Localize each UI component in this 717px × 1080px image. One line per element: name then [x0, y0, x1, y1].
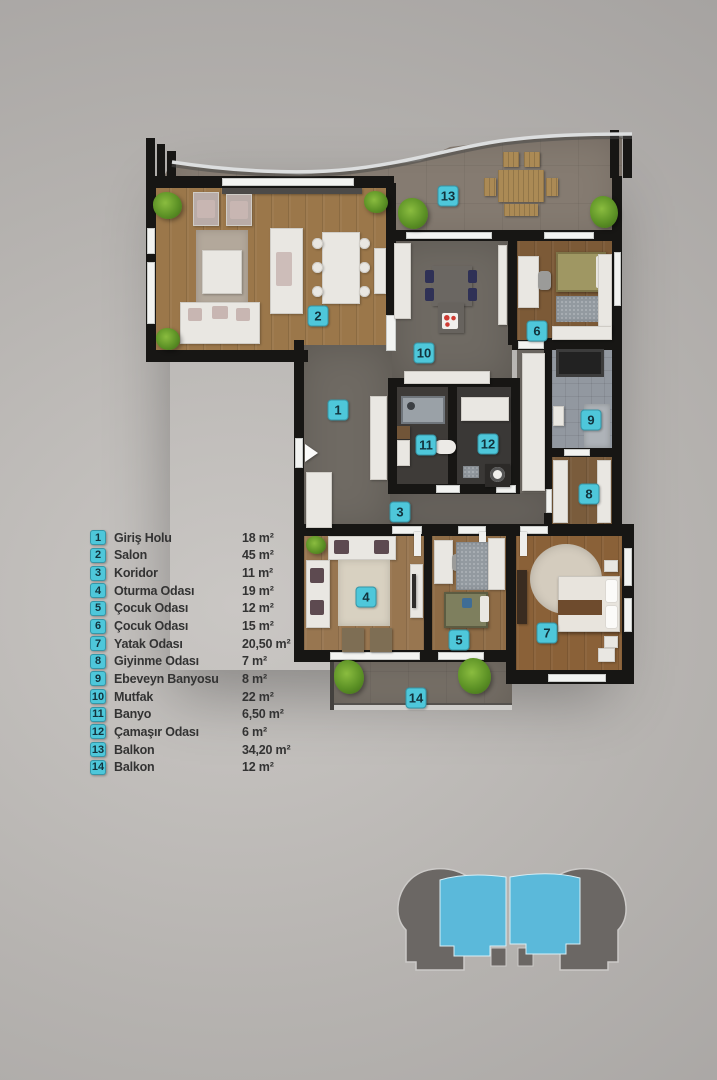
room-number: 5 [455, 633, 462, 648]
balcony-chair [546, 178, 558, 196]
shower [401, 396, 445, 424]
legend-room-area: 19 m² [242, 584, 280, 598]
room-number: 9 [587, 413, 594, 428]
legend-row: 9 Ebeveyn Banyosu 8 m² [90, 670, 280, 688]
sofa-pillow [276, 252, 292, 286]
balcony-dining-table [498, 170, 544, 202]
door-opening [436, 485, 460, 493]
dining-chair [359, 286, 370, 297]
legend-room-label: Giyinme Odası [114, 654, 235, 668]
desk-chair [538, 271, 551, 290]
kitchen-island [432, 266, 472, 306]
room-number: 14 [409, 691, 423, 706]
legend-room-area: 8 m² [242, 672, 280, 686]
dining-chair [312, 262, 323, 273]
lounge-chair [342, 628, 364, 652]
legend-number-badge: 9 [90, 671, 106, 686]
room-number-badge: 6 [527, 321, 548, 342]
sofa-pillow [374, 540, 389, 554]
legend-room-label: Ebeveyn Banyosu [114, 672, 235, 686]
legend-room-area: 18 m² [242, 531, 280, 545]
plant [458, 658, 491, 694]
plant [334, 660, 364, 694]
legend-row: 7 Yatak Odası 20,50 m² [90, 635, 280, 653]
balcony-door [498, 245, 507, 325]
legend-row: 10 Mutfak 22 m² [90, 688, 280, 706]
hall-cabinet [370, 396, 387, 480]
balcony-bench [504, 204, 538, 216]
footprint-right-wing [554, 869, 626, 970]
window [330, 652, 420, 660]
legend-number-badge: 1 [90, 530, 106, 545]
legend-row: 14 Balkon 12 m² [90, 758, 280, 776]
legend: 1 Giriş Holu 18 m² 2 Salon 45 m² 3 Korid… [90, 529, 280, 776]
sofa-pillow [188, 308, 202, 321]
legend-room-area: 15 m² [242, 619, 280, 633]
footprint-left-wing [398, 869, 470, 970]
bed-pillow [480, 596, 489, 622]
sofa-pillow [310, 568, 324, 583]
bar-stool [425, 288, 434, 301]
footprint-unit-highlight-left [440, 875, 506, 956]
window [624, 598, 632, 632]
legend-row: 5 Çocuk Odası 12 m² [90, 600, 280, 618]
legend-number-badge: 6 [90, 619, 106, 634]
room-number: 11 [419, 438, 433, 453]
legend-row: 2 Salon 45 m² [90, 547, 280, 565]
room-number-badge: 7 [537, 623, 558, 644]
bar-stool [468, 270, 477, 283]
bar-stool [468, 288, 477, 301]
room-number: 13 [441, 189, 455, 204]
worktop [404, 371, 490, 384]
window [222, 178, 354, 186]
laundry-mat [463, 466, 479, 478]
wall [424, 532, 432, 650]
building-footprint-key [392, 868, 632, 980]
legend-number-badge: 3 [90, 566, 106, 581]
window [147, 262, 155, 324]
plant [153, 192, 182, 219]
wall [612, 176, 622, 536]
door-leaf [414, 532, 421, 556]
legend-room-label: Çocuk Odası [114, 619, 235, 633]
room-number-badge: 13 [438, 186, 459, 207]
cushion [462, 598, 472, 608]
legend-room-area: 20,50 m² [242, 637, 290, 651]
legend-room-label: Oturma Odası [114, 584, 235, 598]
room-number-badge: 14 [406, 688, 427, 709]
wall [294, 340, 304, 532]
footprint-center-tab [491, 948, 506, 966]
door-opening [564, 449, 590, 456]
legend-number-badge: 2 [90, 548, 106, 563]
room-number-badge: 9 [581, 410, 602, 431]
wall [508, 237, 517, 345]
sink [397, 440, 410, 466]
room-number: 6 [533, 324, 540, 339]
shelf [598, 648, 615, 662]
room-number-badge: 1 [328, 400, 349, 421]
washer-door [490, 467, 505, 482]
balcony-edge [330, 662, 334, 710]
nightstand [604, 560, 618, 572]
wall [610, 130, 619, 178]
room-number-badge: 2 [308, 306, 329, 327]
legend-number-badge: 11 [90, 707, 106, 722]
shoe-cabinet [306, 472, 332, 528]
sofa-pillow [236, 308, 250, 321]
bed-pillow [606, 606, 617, 628]
wall [294, 532, 304, 662]
armchair-cushion [230, 201, 248, 219]
window [406, 232, 492, 239]
legend-number-badge: 8 [90, 654, 106, 669]
desk [518, 256, 539, 308]
wardrobe [553, 460, 568, 523]
legend-room-label: Salon [114, 548, 235, 562]
dining-chair [312, 238, 323, 249]
legend-room-area: 7 m² [242, 654, 280, 668]
legend-room-label: Giriş Holu [114, 531, 235, 545]
dresser [517, 570, 527, 624]
room-number: 7 [543, 626, 550, 641]
hall-closet [522, 353, 545, 491]
window [544, 232, 594, 239]
wall [146, 350, 308, 362]
laundry-shelf [461, 397, 509, 421]
bed-throw [558, 600, 602, 615]
dining-table [322, 232, 360, 304]
room-number-badge: 11 [416, 435, 437, 456]
room5-rug [456, 542, 490, 590]
room-number: 4 [362, 590, 369, 605]
legend-row: 11 Banyo 6,50 m² [90, 705, 280, 723]
coffee-table [202, 250, 242, 294]
wardrobe [598, 254, 612, 334]
plant [156, 328, 180, 350]
bed-pillow [606, 580, 617, 602]
legend-room-area: 11 m² [242, 566, 280, 580]
legend-number-badge: 5 [90, 601, 106, 616]
window [147, 228, 155, 254]
legend-row: 6 Çocuk Odası 15 m² [90, 617, 280, 635]
legend-number-badge: 10 [90, 689, 106, 704]
legend-number-badge: 12 [90, 724, 106, 739]
legend-room-label: Çamaşır Odası [114, 725, 235, 739]
legend-room-label: Banyo [114, 707, 235, 721]
vanity [397, 426, 410, 439]
wall [544, 457, 552, 489]
balcony-chair [524, 152, 540, 167]
room6-rug [556, 296, 604, 322]
entrance-arrow-icon [305, 444, 318, 462]
sofa-pillow [212, 306, 228, 319]
sofa-pillow [334, 540, 349, 554]
legend-row: 8 Giyinme Odası 7 m² [90, 652, 280, 670]
bar-stool [425, 270, 434, 283]
sofa-pillow [310, 600, 324, 615]
wall [511, 378, 520, 484]
window [614, 252, 621, 306]
kitchen-counter [394, 243, 411, 319]
room-number-badge: 4 [356, 587, 377, 608]
legend-number-badge: 14 [90, 760, 106, 775]
cooktop [442, 313, 458, 329]
toilet [434, 440, 456, 454]
legend-number-badge: 4 [90, 583, 106, 598]
balcony-chair [484, 178, 496, 196]
legend-room-area: 22 m² [242, 690, 280, 704]
sideboard [374, 248, 386, 294]
legend-room-area: 45 m² [242, 548, 280, 562]
wall [388, 378, 397, 494]
sink [553, 406, 564, 426]
legend-room-area: 6,50 m² [242, 707, 284, 721]
entrance-recess [295, 438, 303, 468]
footprint-center-tab [518, 948, 533, 966]
legend-room-label: Balkon [114, 760, 235, 774]
room-number-badge: 5 [449, 630, 470, 651]
legend-row: 4 Oturma Odası 19 m² [90, 582, 280, 600]
legend-room-area: 6 m² [242, 725, 280, 739]
wall [623, 135, 632, 178]
legend-row: 12 Çamaşır Odası 6 m² [90, 723, 280, 741]
legend-number-badge: 7 [90, 636, 106, 651]
door-opening [386, 315, 396, 351]
legend-room-label: Mutfak [114, 690, 235, 704]
room-number: 3 [396, 505, 403, 520]
wall [544, 338, 552, 458]
room-number-badge: 10 [414, 343, 435, 364]
window [624, 548, 632, 586]
legend-room-label: Balkon [114, 743, 235, 757]
legend-row: 13 Balkon 34,20 m² [90, 741, 280, 759]
floor-plan-page: 1 2 3 4 5 6 7 [0, 0, 717, 1080]
plant [364, 191, 388, 213]
wall [506, 532, 516, 682]
tv [412, 574, 416, 608]
dining-chair [312, 286, 323, 297]
door-opening [546, 489, 552, 513]
legend-number-badge: 13 [90, 742, 106, 757]
wardrobe [552, 326, 612, 340]
shower-head [407, 402, 415, 410]
window [548, 674, 606, 682]
legend-room-label: Çocuk Odası [114, 601, 235, 615]
legend-row: 1 Giriş Holu 18 m² [90, 529, 280, 547]
armchair-cushion [197, 200, 215, 218]
wall [448, 383, 457, 485]
room-number-badge: 12 [478, 434, 499, 455]
room-number: 10 [417, 346, 431, 361]
desk [434, 540, 453, 584]
legend-room-label: Koridor [114, 566, 235, 580]
legend-room-label: Yatak Odası [114, 637, 235, 651]
plant [590, 196, 618, 228]
plant [398, 198, 428, 229]
room-number-badge: 8 [579, 484, 600, 505]
legend-room-area: 34,20 m² [242, 743, 290, 757]
legend-row: 3 Koridor 11 m² [90, 564, 280, 582]
nightstand [604, 636, 618, 648]
room-number: 8 [585, 487, 592, 502]
wardrobe [488, 538, 505, 590]
door-opening [518, 341, 544, 349]
bathtub [556, 349, 604, 377]
room-number-badge: 3 [390, 502, 411, 523]
lounge-chair [370, 628, 392, 652]
legend-room-area: 12 m² [242, 601, 280, 615]
legend-room-area: 12 m² [242, 760, 280, 774]
dining-chair [359, 238, 370, 249]
room-number: 1 [334, 403, 341, 418]
balcony-chair [503, 152, 519, 167]
door-leaf [520, 532, 527, 556]
room-number: 12 [481, 437, 495, 452]
room-number: 2 [314, 309, 321, 324]
footprint-unit-highlight-right [510, 874, 580, 954]
dining-chair [359, 262, 370, 273]
plant [306, 536, 326, 554]
